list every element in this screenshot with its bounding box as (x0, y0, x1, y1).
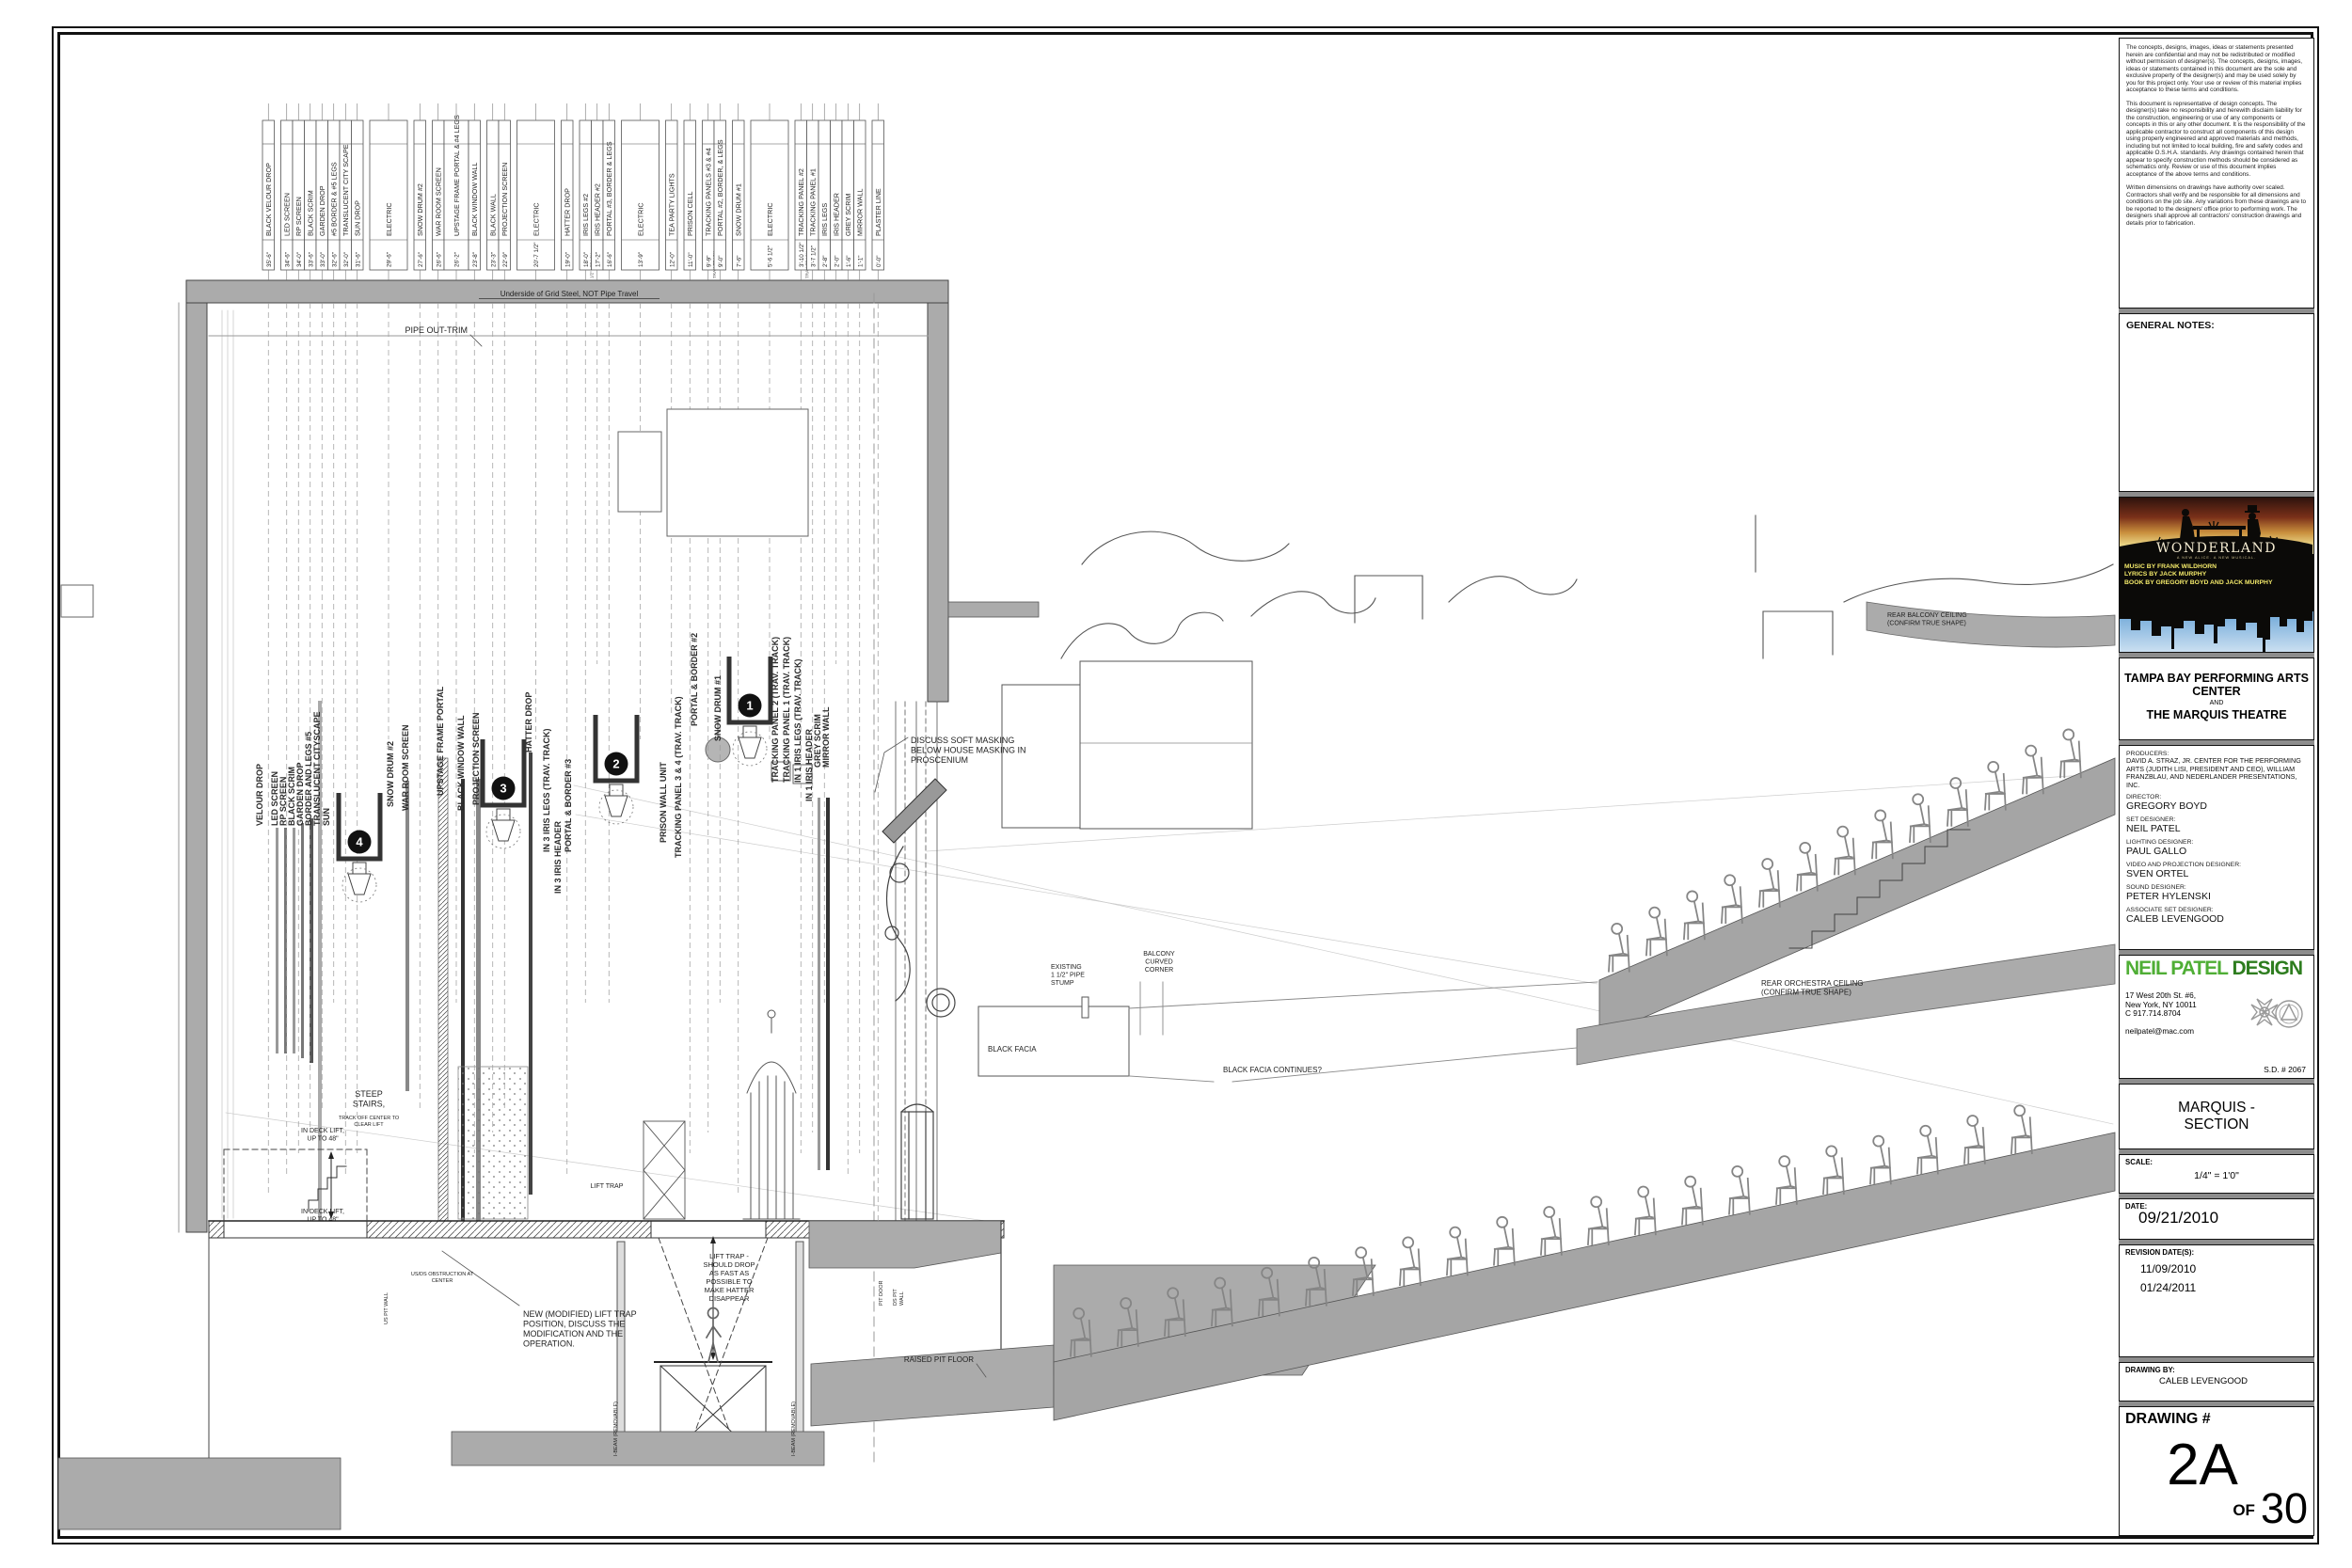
lineset-label: TRACKING PANEL #1 (809, 168, 818, 236)
disclaimer-paragraph: Written dimensions on drawings have auth… (2126, 184, 2307, 227)
show-credit-line: LYRICS BY JACK MURPHY (2124, 571, 2272, 578)
show-art-title-band: WONDERLAND A NEW ALICE. A NEW MUSICAL. M… (2120, 554, 2313, 611)
show-title: WONDERLAND (2120, 541, 2313, 556)
seated-audience-figure (1947, 778, 1968, 827)
disclaimer-paragraph: This document is representative of desig… (2126, 101, 2307, 179)
venue-section: TAMPA BAY PERFORMING ARTS CENTER AND THE… (2119, 657, 2314, 740)
snow-drum-number: 1 (746, 699, 753, 713)
lineset: BLACK VELOUR DROP35'-6" (262, 103, 275, 280)
lineset: BLACK WALL23'-3" (487, 103, 500, 280)
hanging-drops (276, 701, 830, 1223)
seated-audience-figure (1823, 1146, 1844, 1195)
drop-label: SUN (322, 808, 331, 826)
show-credit-line: MUSIC BY FRANK WILDHORN (2124, 563, 2272, 571)
drawing-by-label: DRAWING BY: (2125, 1366, 2308, 1374)
seated-audience-figure (2023, 746, 2043, 795)
lineset-trim: 31'-6" (355, 252, 361, 267)
seated-audience-figure (1400, 1237, 1421, 1286)
seated-audience-figure (1985, 762, 2006, 811)
drop-label: IN 3 IRIS HEADER (553, 820, 563, 894)
booth-box-small (1002, 685, 1080, 828)
lineset-trim: 1'-1" (857, 255, 864, 267)
lineset-trim: 7'-6" (736, 255, 742, 267)
lineset-label: SUN DROP (354, 200, 362, 236)
lineset-label: LED SCREEN (283, 193, 292, 236)
lineset-label: BLACK SCRIM (307, 190, 315, 236)
union-badge-icon (2244, 991, 2306, 1037)
drawing-number-label: DRAWING # (2125, 1411, 2308, 1428)
drawing-sheet: BLACK VELOUR DROP35'-6"LED SCREEN34'-6"R… (0, 0, 2352, 1568)
drop-label: TRACKING PANEL 3 & 4 (TRAV. TRACK) (674, 696, 683, 858)
lineset-trim: 26'-6" (436, 252, 442, 267)
black-facia-box (978, 1006, 1129, 1076)
detail-box (618, 432, 661, 512)
seated-audience-figure (1722, 875, 1742, 924)
drop-label: VELOUR DROP (255, 764, 264, 826)
credit-role: VIDEO AND PROJECTION DESIGNER: (2126, 862, 2307, 868)
garden-texture-panel (458, 1067, 528, 1219)
date-section: DATE: 09/21/2010 (2119, 1198, 2314, 1240)
lineset: SUN DROP31'-6" (352, 103, 364, 280)
ds-pit-wall (809, 1221, 1001, 1268)
balcony-corner-lines (1129, 982, 1597, 1082)
lineset: PORTAL #2, BORDER, & LEGS9'-0" (714, 103, 726, 280)
lineset: IRIS LEGS2'-8" (818, 103, 831, 280)
seated-audience-figure (1646, 908, 1667, 957)
credit-name: GREGORY BOYD (2126, 800, 2307, 812)
drop-label: IN 1 IRIS LEGS (TRAV. TRACK) (793, 658, 803, 783)
of-label: OF (2233, 1501, 2255, 1519)
annotation-text: BLACK FACIA CONTINUES? (1223, 1066, 1322, 1074)
lineset: SNOW DRUM #17'-6" (733, 103, 745, 280)
lineset: TRACKING PANEL #13'-7 1/2" (807, 103, 819, 280)
lineset-label: PORTAL #3, BORDER & LEGS (605, 141, 613, 236)
scale-label: SCALE: (2125, 1158, 2308, 1166)
basement-slab (452, 1432, 824, 1465)
proscenium-wall (928, 303, 948, 702)
lineset-trim: 1'-6" (846, 255, 852, 267)
lineset-trim: 17'-2" (595, 252, 601, 267)
revision-date: 01/24/2011 (2140, 1281, 2308, 1294)
snow-drum-unit: 2 (596, 715, 637, 824)
snow-drum-unit: 1 (729, 657, 771, 766)
seated-audience-figure (1964, 1116, 1985, 1164)
lineset-trim: 34'-0" (296, 252, 303, 267)
lineset: ELECTRIC29'-6" (370, 103, 407, 280)
studio-logo: NEIL PATEL DESIGN (2125, 958, 2308, 980)
lineset-label: #5 BORDER & #5 LEGS (330, 162, 339, 236)
venue-line1: TAMPA BAY PERFORMING ARTS CENTER (2120, 672, 2313, 698)
lineset-label: RP SCREEN (294, 197, 303, 236)
lineset-label: IRIS HEADER #2 (594, 183, 602, 236)
lineset-label: WAR ROOM SCREEN (435, 167, 443, 236)
deck-lift-opening (224, 1221, 367, 1238)
lineset-trim: 33'-0" (320, 252, 326, 267)
annotation-text: US PIT WALL (384, 1292, 389, 1324)
credit-name: SVEN ORTEL (2126, 868, 2307, 879)
drop-label: TRANSLUCENT CITYSCAPE (312, 711, 322, 826)
lineset-trim: 11'-0" (688, 252, 694, 267)
lineset-trim: 33'-6" (308, 252, 314, 267)
show-credits: MUSIC BY FRANK WILDHORN LYRICS BY JACK M… (2124, 563, 2272, 587)
seated-audience-figure (1682, 1177, 1703, 1226)
foh-ceiling-slab (948, 602, 1039, 617)
inverted-skyline (2120, 611, 2312, 653)
revision-label: REVISION DATE(S): (2125, 1248, 2308, 1257)
lineset-label: PLASTER LINE (874, 188, 882, 236)
lineset-label: GREY SCRIM (844, 194, 852, 236)
credits-section: PRODUCERS:DAVID A. STRAZ, JR. CENTER FOR… (2119, 745, 2314, 950)
revision-section: REVISION DATE(S): 11/09/2010 01/24/2011 (2119, 1244, 2314, 1357)
drop-label: PORTAL & BORDER #3 (564, 759, 573, 852)
annotation-text: IN DECK LIFT,UP TO 48" (301, 1209, 344, 1224)
proscenium (875, 702, 937, 1221)
lineset: #5 BORDER & #5 LEGS32'-6" (328, 103, 341, 280)
lineset: BLACK SCRIM33'-6" (305, 103, 317, 280)
lineset-trim: 23'-3" (490, 252, 497, 267)
studio-section: NEIL PATEL DESIGN 17 West 20th St. #6, N… (2119, 955, 2314, 1079)
lineset-label: ELECTRIC (532, 202, 540, 236)
sd-number: S.D. # 2067 (2264, 1065, 2306, 1074)
lineset-label: SNOW DRUM #1 (735, 183, 743, 236)
annotation-text: I-BEAM (REMOVABLE) (613, 1402, 619, 1456)
lineset-label: SNOW DRUM #2 (416, 183, 424, 236)
seated-audience-figure (1872, 810, 1893, 859)
seated-audience-figure (1588, 1196, 1609, 1245)
lineset: SNOW DRUM #227'-6" (414, 103, 426, 280)
lift-trap-opening (651, 1221, 766, 1238)
annotation-text: US/DS OBSTRUCTION ATCENTER (411, 1272, 474, 1284)
annotation-text: RAISED PIT FLOOR (904, 1355, 974, 1364)
counterweight-lines (222, 310, 233, 1218)
drop-label: TRACKING PANEL 1 (TRAV. TRACK) (782, 637, 791, 783)
drop-label: UPSTAGE FRAME PORTAL (436, 686, 445, 796)
show-tagline: A NEW ALICE. A NEW MUSICAL. (2120, 556, 2313, 560)
lineset-label: PRISON CELL (686, 191, 694, 236)
lineset-trim: 34'-6" (284, 252, 291, 267)
annotation-text: TRACK OFF CENTER TOCLEAR LIFT (339, 1116, 400, 1128)
date-value: 09/21/2010 (2138, 1209, 2308, 1227)
stage-house-structure (58, 280, 2115, 1529)
snow-drum-unit: 4 (339, 793, 380, 902)
stage-left-wall (186, 303, 207, 1232)
sheet-title-section: MARQUIS - SECTION (2119, 1084, 2314, 1149)
wall-detail-box (61, 585, 93, 617)
detail-box (667, 409, 808, 536)
lineset-label: TEA PARTY LIGHTS (668, 173, 676, 236)
truss-tower (644, 1121, 685, 1219)
total-sheets: 30 (2261, 1484, 2308, 1532)
lineset: IRIS HEADER2'-0" (831, 103, 843, 280)
lineset: WAR ROOM SCREEN26'-6" (433, 103, 445, 280)
lineset: ELECTRIC13'-9" (622, 103, 660, 280)
lineset-trim: 32'-6" (331, 252, 338, 267)
lineset-label: PORTAL #2, BORDER, & LEGS (716, 139, 724, 236)
scale-value: 1/4" = 1'0" (2125, 1170, 2308, 1181)
lineset-label: PROJECTION SCREEN (501, 163, 509, 236)
section-drawing: BLACK VELOUR DROP35'-6"LED SCREEN34'-6"R… (0, 0, 2352, 1568)
venue-line2: THE MARQUIS THEATRE (2120, 708, 2313, 721)
seated-audience-figure (1684, 891, 1705, 940)
lineset-trim: 12'-0" (669, 252, 675, 267)
credit-role: SET DESIGNER: (2126, 816, 2307, 823)
annotation-text: LIFT TRAP -SHOULD DROPAS FAST ASPOSSIBLE… (703, 1252, 755, 1303)
annotation-text: BALCONYCURVEDCORNER (1143, 951, 1175, 974)
scale-section: SCALE: 1/4" = 1'0" (2119, 1154, 2314, 1194)
show-credit-line: BOOK BY GREGORY BOYD AND JACK MURPHY (2124, 579, 2272, 587)
lineset: PLASTER LINE0'-0" (872, 103, 884, 280)
show-artwork: WONDERLAND A NEW ALICE. A NEW MUSICAL. M… (2119, 497, 2314, 653)
lineset: PRISON CELL11'-0" (684, 103, 696, 280)
seated-audience-figure (1494, 1217, 1515, 1266)
lineset: PORTAL #3, BORDER & LEGS16'-6" (603, 103, 615, 280)
drop-label: PORTAL & BORDER #2 (690, 633, 699, 726)
lineset-label: IRIS LEGS (820, 203, 829, 236)
snow-drum-number: 3 (500, 782, 506, 796)
drop-label: PROJECTION SCREEN (471, 712, 481, 805)
annotation-text: I-BEAM (REMOVABLE) (791, 1402, 797, 1456)
credit-role: DIRECTOR: (2126, 794, 2307, 800)
seated-audience-figure (1776, 1156, 1797, 1205)
seated-audience-figure (1609, 924, 1629, 973)
lineset-trim: 2'-0" (834, 255, 840, 267)
lineset-trim: 16'-6" (607, 252, 613, 267)
lineset: RP SCREEN34'-0" (293, 103, 305, 280)
drawing-by-name: CALEB LEVENGOOD (2159, 1376, 2308, 1386)
lineset-trim: 32'-0" (343, 252, 350, 267)
disclaimer-paragraph: The concepts, designs, images, ideas or … (2126, 44, 2307, 94)
lineset-label: IRIS HEADER (833, 193, 841, 236)
lineset-trim: 2'-8" (822, 255, 829, 267)
lineset-trim: 26'-2" (454, 252, 461, 267)
lineset-label: MIRROR WALL (856, 189, 865, 236)
lineset: GREY SCRIM1'-6" (842, 103, 854, 280)
lineset: BLACK WINDOW WALL23'-8" (469, 103, 481, 280)
snow-drum-number: 4 (356, 835, 363, 849)
snow-drum-unit: 3 (483, 739, 524, 848)
seated-audience-figure (1447, 1227, 1468, 1276)
seated-audience-figure (1729, 1166, 1750, 1215)
lineset-trim: 35'-6" (266, 252, 273, 267)
lineset-label: ELECTRIC (766, 202, 774, 236)
annotation-text: LIFT TRAP (591, 1183, 624, 1190)
lineset-trim: 20'-7 1/2" (533, 242, 540, 267)
show-art-skyline (2120, 611, 2313, 653)
seated-audience-figure (1870, 1136, 1891, 1185)
pipe-stump (1082, 997, 1089, 1018)
annotation-text: EXISTING1 1/2" PIPESTUMP (1051, 964, 1085, 987)
lineset-label: TRACKING PANEL #2 (797, 168, 805, 236)
lineset: ELECTRIC5'-6 1/2" (751, 103, 788, 280)
drop-label: PRISON WALL UNIT (659, 762, 668, 843)
drawing-number-section: DRAWING # 2A OF30 (2119, 1406, 2314, 1536)
lineset-label: TRACKING PANELS #3 & #4 (705, 148, 713, 236)
annotation-text: IN DECK LIFT,UP TO 48" (301, 1128, 344, 1143)
seated-audience-figure (1759, 859, 1780, 908)
annotation-text: Underside of Grid Steel, NOT Pipe Travel (501, 290, 639, 298)
seated-audience-figure (1917, 1126, 1938, 1175)
booth-box (1080, 661, 1252, 829)
lineset-label: IRIS LEGS #2 (581, 194, 590, 236)
seated-audience-figure (1910, 794, 1931, 843)
drop-labels: VELOUR DROPLED SCREENRP SCREENBLACK SCRI… (255, 633, 831, 894)
credit-role: ASSOCIATE SET DESIGNER: (2126, 907, 2307, 913)
lineset: GARDEN DROP33'-0" (316, 103, 328, 280)
snow-drum-number: 2 (612, 757, 619, 771)
lineset-trim: 23'-8" (472, 252, 479, 267)
lineset-trim: 3'-7 1/2" (810, 245, 817, 267)
venue-and: AND (2120, 700, 2313, 706)
general-notes-section: GENERAL NOTES: (2119, 313, 2314, 492)
drop-label: WAR ROOM SCREEN (401, 724, 410, 811)
lineset-label: HATTER DROP (564, 188, 572, 236)
lineset-trim: 27'-6" (418, 252, 424, 267)
lineset-trim: 29'-6" (387, 252, 393, 267)
lineset-trim: 19'-0" (564, 252, 571, 267)
seated-audience-figure (2060, 729, 2081, 778)
lineset-trim: 22'-9" (502, 252, 509, 267)
credit-name: NEIL PATEL (2126, 823, 2307, 834)
seated-audience-figure (1835, 827, 1855, 876)
lineset-label: GARDEN DROP (318, 185, 326, 236)
annotation-text: STEEPSTAIRS, (353, 1089, 385, 1109)
lineset-label: BLACK VELOUR DROP (264, 163, 273, 236)
lineset-trim: 5'-6 1/2" (768, 245, 774, 267)
revision-date: 11/09/2010 (2140, 1262, 2308, 1275)
annotation-text: REAR BALCONY CEILING(CONFIRM TRUE SHAPE) (1887, 612, 1967, 627)
annotation-text: REAR ORCHESTRA CEILING(CONFIRM TRUE SHAP… (1761, 979, 1863, 997)
lineset: TEA PARTY LIGHTS12'-0" (666, 103, 678, 280)
lineset-trim: 0'-0" (876, 255, 882, 267)
annotation-text: BLACK FACIA (988, 1045, 1037, 1053)
title-block: The concepts, designs, images, ideas or … (2119, 38, 2314, 1535)
lineset-schedule: BLACK VELOUR DROP35'-6"LED SCREEN34'-6"R… (262, 103, 884, 280)
annotation-text: DS PITWALL (893, 1289, 905, 1306)
lineset-label: ELECTRIC (385, 202, 393, 236)
drawing-by-section: DRAWING BY: CALEB LEVENGOOD (2119, 1362, 2314, 1402)
lineset: PROJECTION SCREEN22'-9" (499, 103, 511, 280)
general-notes-label: GENERAL NOTES: (2126, 320, 2307, 331)
drop-label: BLACK WINDOW WALL (456, 715, 466, 811)
seated-audience-figure (1635, 1186, 1656, 1235)
lineset-trim: 13'-9" (638, 252, 644, 267)
credit-role: SOUND DESIGNER: (2126, 884, 2307, 891)
disclaimer-section: The concepts, designs, images, ideas or … (2119, 38, 2314, 309)
drop-label: MIRROR WALL (821, 706, 831, 768)
lineset-trim: 9'-0" (718, 255, 724, 267)
lineset: TRANSLUCENT CITY SCAPE32'-0" (340, 103, 352, 280)
credit-role: LIGHTING DESIGNER: (2126, 839, 2307, 846)
basement-slab (58, 1458, 341, 1529)
annotation-text: PIPE OUT-TRIM (405, 325, 468, 335)
drop-label: SNOW DRUM #2 (386, 741, 395, 807)
seated-audience-figure (1541, 1207, 1562, 1256)
lineset-label: BLACK WALL (489, 194, 498, 236)
sheet-title: MARQUIS - SECTION (2165, 1100, 2268, 1133)
lineset: HATTER DROP19'-0" (562, 103, 574, 280)
seated-audience-figure (1797, 843, 1818, 892)
seated-audience-figure (2011, 1105, 2032, 1154)
lineset-label: ELECTRIC (636, 202, 644, 236)
credit-name: DAVID A. STRAZ, JR. CENTER FOR THE PERFO… (2126, 757, 2307, 789)
credit-name: PAUL GALLO (2126, 846, 2307, 857)
lineset-label: TRANSLUCENT CITY SCAPE (342, 144, 350, 236)
drop-label: IN 3 IRIS LEGS (TRAV. TRACK) (542, 728, 551, 852)
lineset-label: BLACK WINDOW WALL (470, 163, 479, 236)
annotation-text: PIT DOOR (879, 1280, 884, 1306)
credit-name: CALEB LEVENGOOD (2126, 913, 2307, 925)
lineset-label: UPSTAGE FRAME PORTAL & #4 LEGS (453, 115, 461, 236)
lineset: MIRROR WALL1'-1" (854, 103, 866, 280)
lineset: UPSTAGE FRAME PORTAL & #4 LEGS26'-2" (444, 103, 469, 280)
lineset: ELECTRIC20'-7 1/2" (517, 103, 555, 280)
lineset: IRIS HEADER #217'-2" (592, 103, 604, 280)
lineset: LED SCREEN34'-6" (281, 103, 294, 280)
drop-label: SNOW DRUM #1 (713, 675, 723, 741)
credit-name: PETER HYLENSKI (2126, 891, 2307, 902)
